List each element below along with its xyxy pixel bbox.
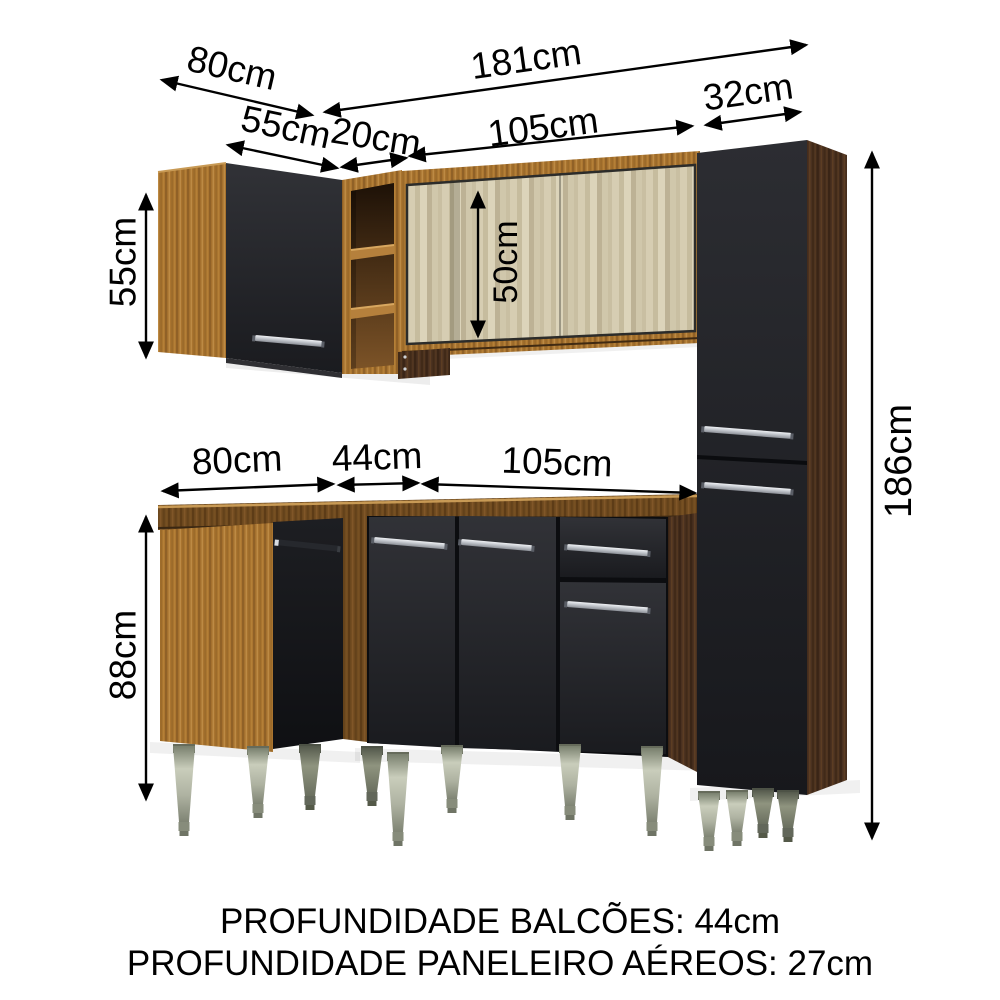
dim-label-tall-cabinet-height: 186cm <box>878 404 920 518</box>
niche-inner-shade <box>351 190 356 369</box>
base-corner-cabinet <box>160 517 367 752</box>
base-corner-door <box>273 518 343 749</box>
screw-cap <box>403 355 406 358</box>
wall-cabinet-left-side-panel <box>158 163 226 358</box>
screw-cap <box>403 367 406 370</box>
footer-depth-wall-units: PROFUNDIDADE PANELEIRO AÉREOS: 27cm <box>127 944 873 983</box>
kitchen-illustration: 80cm 181cm 55cm 20cm 105cm 32cm 55cm 50 <box>0 0 1000 1000</box>
dim-label-glass-opening-height: 50cm <box>487 220 525 303</box>
dim-label-base-corner-width: 44cm <box>331 435 423 479</box>
dim-label-upper-left-height: 55cm <box>103 217 144 307</box>
wall-cabinet-left <box>158 163 342 378</box>
base-corner-side-panel <box>160 523 273 752</box>
tall-cabinet-front <box>697 140 807 795</box>
corner-return-panel <box>398 348 450 379</box>
niche-opening <box>351 183 394 369</box>
base-main-door-a <box>369 516 455 748</box>
glass-pane-edge <box>450 179 460 343</box>
dim-label-base-left-width: 80cm <box>191 438 283 483</box>
dim-label-base-main-width: 105cm <box>501 440 613 485</box>
tall-cabinet-side-panel <box>807 140 847 795</box>
dim-label-base-height: 88cm <box>103 610 144 700</box>
glass-wall-cabinet <box>398 151 700 379</box>
base-corner-stile <box>343 517 367 742</box>
product-dimension-image: 80cm 181cm 55cm 20cm 105cm 32cm 55cm 50 <box>0 0 1000 1000</box>
tall-cabinet <box>697 140 847 795</box>
base-main-side-panel <box>668 513 697 772</box>
base-main-cabinet <box>367 513 697 772</box>
base-main-door-b <box>459 516 556 751</box>
open-shelf-niche <box>342 170 402 374</box>
footer-depth-counters: PROFUNDIDADE BALCÕES: 44cm <box>220 901 780 941</box>
